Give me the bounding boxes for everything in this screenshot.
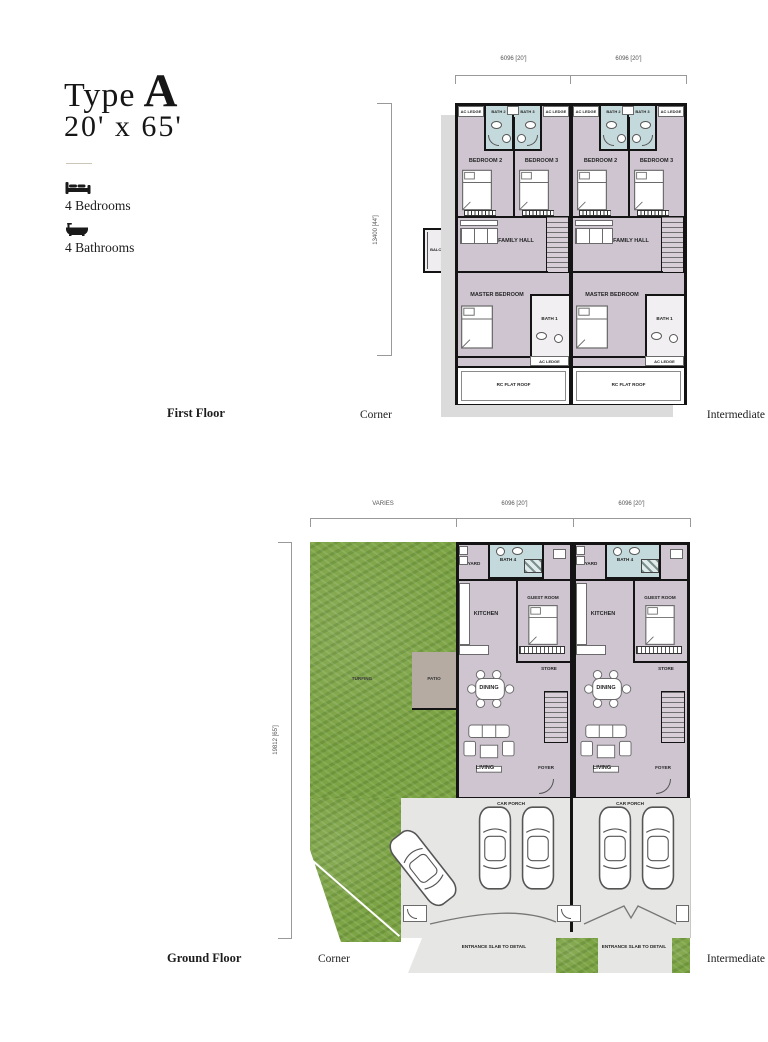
wall bbox=[633, 579, 635, 663]
entrance-pillar bbox=[557, 905, 581, 922]
ac-ledge-label: AC LEDGE bbox=[459, 110, 483, 115]
bedroom-divider-wall bbox=[513, 117, 515, 216]
wall bbox=[573, 356, 647, 358]
ff-dim-tick bbox=[686, 75, 687, 84]
gf-dim-tick bbox=[456, 518, 457, 527]
sink bbox=[525, 121, 536, 129]
bed-shape bbox=[519, 168, 549, 212]
unit-size: 20' x 65' bbox=[64, 110, 183, 144]
room-label-rc-flat-roof: RC FLAT ROOF bbox=[458, 382, 569, 387]
ff-dim-height: 13400 [44'] bbox=[373, 200, 383, 260]
gf-dim-tick bbox=[690, 518, 691, 527]
bed-shape bbox=[527, 605, 559, 645]
sink bbox=[606, 121, 617, 129]
gf-dim-bracket-top bbox=[310, 518, 690, 519]
room-label-foyer: FOYER bbox=[642, 765, 684, 770]
room-label-store: STORE bbox=[531, 666, 567, 671]
room-label-foyer: FOYER bbox=[525, 765, 567, 770]
grass-patch bbox=[556, 938, 598, 973]
gf-dim-width-left: 6096 [20'] bbox=[456, 501, 573, 507]
ff-intermediate-label: Intermediate bbox=[697, 409, 765, 421]
toilet bbox=[613, 547, 622, 556]
stairs bbox=[661, 216, 684, 273]
ff-dim-tick bbox=[455, 75, 456, 84]
bath-1-room bbox=[530, 294, 569, 356]
gf-dim-tick bbox=[310, 518, 311, 527]
stairs bbox=[544, 691, 568, 743]
ff-corner-label: Corner bbox=[360, 409, 392, 421]
toilet bbox=[632, 134, 641, 143]
room-label-family-hall: FAMILY HALL bbox=[488, 238, 544, 244]
bathtub-icon bbox=[65, 223, 89, 236]
toilet bbox=[554, 334, 563, 343]
door-arc bbox=[407, 909, 417, 919]
room-label-guest-room: GUEST ROOM bbox=[635, 595, 685, 600]
room-label-kitchen: KITCHEN bbox=[461, 611, 511, 617]
gf-unit-intermediate: YARD BATH 4 KITCHEN GUEST ROOM STORE DIN… bbox=[573, 542, 690, 800]
room-label-yard: YARD bbox=[577, 561, 605, 566]
room-label-living: LIVING bbox=[578, 765, 626, 771]
entrance-slab-label: ENTRANCE SLAB TO DETAIL bbox=[598, 944, 670, 949]
room-label-kitchen: KITCHEN bbox=[578, 611, 628, 617]
wall bbox=[576, 579, 687, 581]
stairs bbox=[546, 216, 569, 273]
wall bbox=[516, 661, 570, 663]
door-arc bbox=[527, 135, 538, 146]
car bbox=[478, 806, 512, 890]
gf-dim-width-right: 6096 [20'] bbox=[573, 501, 690, 507]
room-label-living: LIVING bbox=[461, 765, 509, 771]
ff-dim-bracket-top bbox=[455, 75, 687, 76]
room-label-bath2: BATH 2 bbox=[486, 110, 511, 115]
gf-dim-tick bbox=[573, 518, 574, 527]
ff-unit-corner: AC LEDGE AC LEDGE BATH 2 BATH 3 BEDROOM … bbox=[455, 103, 572, 405]
balcony-room: BALCONY bbox=[423, 228, 457, 273]
ff-dim-tick bbox=[377, 103, 391, 104]
sink bbox=[640, 121, 651, 129]
room-label-turfing: TURFING bbox=[332, 676, 392, 681]
room-label-bedroom3: BEDROOM 3 bbox=[629, 158, 684, 164]
sink bbox=[629, 547, 640, 555]
door-arc bbox=[561, 909, 571, 919]
ac-ledge: AC LEDGE bbox=[543, 106, 569, 117]
door-arc bbox=[603, 135, 614, 146]
toilet bbox=[517, 134, 526, 143]
room-label-bath4: BATH 4 bbox=[607, 557, 643, 562]
door-arc bbox=[642, 135, 653, 146]
sink bbox=[651, 332, 662, 340]
ac-ledge: AC LEDGE bbox=[658, 106, 684, 117]
room-label-master-bedroom: MASTER BEDROOM bbox=[460, 292, 534, 298]
ac-ledge-label: AC LEDGE bbox=[646, 360, 683, 365]
room-label-balcony: BALCONY bbox=[425, 248, 455, 253]
entrance-door-arc bbox=[656, 779, 671, 794]
ff-dim-bracket-left bbox=[391, 103, 392, 356]
ff-dim-tick bbox=[570, 75, 571, 84]
wardrobe bbox=[636, 646, 682, 654]
wall bbox=[458, 356, 532, 358]
ff-dim-width-left: 6096 [20'] bbox=[455, 56, 572, 62]
gf-dim-tick bbox=[278, 938, 291, 939]
room-label-bath1: BATH 1 bbox=[530, 316, 569, 321]
gf-dim-tick bbox=[278, 542, 291, 543]
ground-floor-title: Ground Floor bbox=[167, 951, 241, 966]
wall bbox=[573, 271, 663, 273]
toilet bbox=[669, 334, 678, 343]
ac-ledge: AC LEDGE bbox=[530, 356, 569, 366]
wall bbox=[516, 579, 518, 663]
entrance-pillar bbox=[403, 905, 427, 922]
bed-shape bbox=[576, 304, 608, 350]
gf-dim-height: 19812 [65'] bbox=[273, 710, 283, 770]
room-label-store: STORE bbox=[648, 666, 684, 671]
ac-ledge-label: AC LEDGE bbox=[544, 110, 568, 115]
gf-dim-varies: VARIES bbox=[310, 501, 456, 507]
ac-ledge: AC LEDGE bbox=[458, 106, 484, 117]
car bbox=[521, 806, 555, 890]
ff-dim-tick bbox=[377, 355, 391, 356]
wall bbox=[459, 579, 570, 581]
gf-dim-bracket-left bbox=[291, 542, 292, 939]
room-label-bath4: BATH 4 bbox=[490, 557, 526, 562]
toilet bbox=[502, 134, 511, 143]
toilet bbox=[496, 547, 505, 556]
toilet bbox=[617, 134, 626, 143]
sideboard bbox=[575, 220, 613, 226]
room-label-bath3: BATH 3 bbox=[630, 110, 655, 115]
bed-icon bbox=[65, 181, 91, 195]
room-label-patio: PATIO bbox=[412, 676, 456, 681]
bed-shape bbox=[462, 168, 492, 212]
room-label-rc-flat-roof: RC FLAT ROOF bbox=[573, 382, 684, 387]
sink bbox=[512, 547, 523, 555]
ac-ledge: AC LEDGE bbox=[645, 356, 684, 366]
room-label-bedroom3: BEDROOM 3 bbox=[514, 158, 569, 164]
ff-unit-intermediate: AC LEDGE AC LEDGE BATH 2 BATH 3 BEDROOM … bbox=[570, 103, 687, 405]
ff-dim-width-right: 6096 [20'] bbox=[570, 56, 687, 62]
bed-shape bbox=[634, 168, 664, 212]
bed-shape bbox=[644, 605, 676, 645]
washer bbox=[459, 546, 468, 555]
basin bbox=[553, 549, 566, 559]
gf-corner-label: Corner bbox=[318, 953, 350, 965]
shower bbox=[524, 559, 542, 573]
room-label-family-hall: FAMILY HALL bbox=[603, 238, 659, 244]
room-label-dining: DINING bbox=[582, 685, 630, 691]
wardrobe bbox=[519, 646, 565, 654]
bath-4-room: BATH 4 bbox=[605, 545, 661, 579]
entrance-door-arc bbox=[539, 779, 554, 794]
bath-4-room: BATH 4 bbox=[488, 545, 544, 579]
car bbox=[641, 806, 675, 890]
wall bbox=[458, 271, 548, 273]
washer bbox=[576, 546, 585, 555]
bedrooms-count: 4 Bedrooms bbox=[65, 198, 131, 214]
gf-intermediate-label: Intermediate bbox=[697, 953, 765, 965]
bed-shape bbox=[461, 304, 493, 350]
kitchen-counter bbox=[459, 645, 489, 655]
bed-shape bbox=[577, 168, 607, 212]
shower bbox=[641, 559, 659, 573]
basin bbox=[670, 549, 683, 559]
stairs bbox=[661, 691, 685, 743]
wall bbox=[633, 661, 687, 663]
entrance-slab-label: ENTRANCE SLAB TO DETAIL bbox=[448, 944, 540, 949]
first-floor-title: First Floor bbox=[167, 406, 225, 421]
room-label-bedroom2: BEDROOM 2 bbox=[573, 158, 628, 164]
bathrooms-count: 4 Bathrooms bbox=[65, 240, 134, 256]
room-label-bedroom2: BEDROOM 2 bbox=[458, 158, 513, 164]
sink bbox=[491, 121, 502, 129]
room-label-bath3: BATH 3 bbox=[515, 110, 540, 115]
kitchen-counter bbox=[576, 645, 606, 655]
sink bbox=[536, 332, 547, 340]
room-label-guest-room: GUEST ROOM bbox=[518, 595, 568, 600]
bedroom-divider-wall bbox=[628, 117, 630, 216]
door-arc bbox=[488, 135, 499, 146]
room-label-bath1: BATH 1 bbox=[645, 316, 684, 321]
ac-ledge-label: AC LEDGE bbox=[574, 110, 598, 115]
grass-patch bbox=[672, 938, 690, 973]
room-label-dining: DINING bbox=[465, 685, 513, 691]
room-label-bath2: BATH 2 bbox=[601, 110, 626, 115]
ac-ledge: AC LEDGE bbox=[573, 106, 599, 117]
car bbox=[598, 806, 632, 890]
entrance-gate-lines bbox=[400, 896, 690, 934]
sideboard bbox=[460, 220, 498, 226]
ac-ledge-label: AC LEDGE bbox=[659, 110, 683, 115]
bath-1-room bbox=[645, 294, 684, 356]
entrance-pillar bbox=[676, 905, 689, 922]
header-divider bbox=[66, 163, 92, 164]
gf-unit-corner: YARD BATH 4 KITCHEN GUEST ROOM STORE DIN… bbox=[456, 542, 573, 800]
ac-ledge-label: AC LEDGE bbox=[531, 360, 568, 365]
room-label-yard: YARD bbox=[460, 561, 488, 566]
room-label-master-bedroom: MASTER BEDROOM bbox=[575, 292, 649, 298]
type-word: Type bbox=[64, 77, 136, 114]
floor-plan-page: TypeA 20' x 65' 4 Bedrooms 4 Bathrooms 6… bbox=[0, 0, 768, 1042]
